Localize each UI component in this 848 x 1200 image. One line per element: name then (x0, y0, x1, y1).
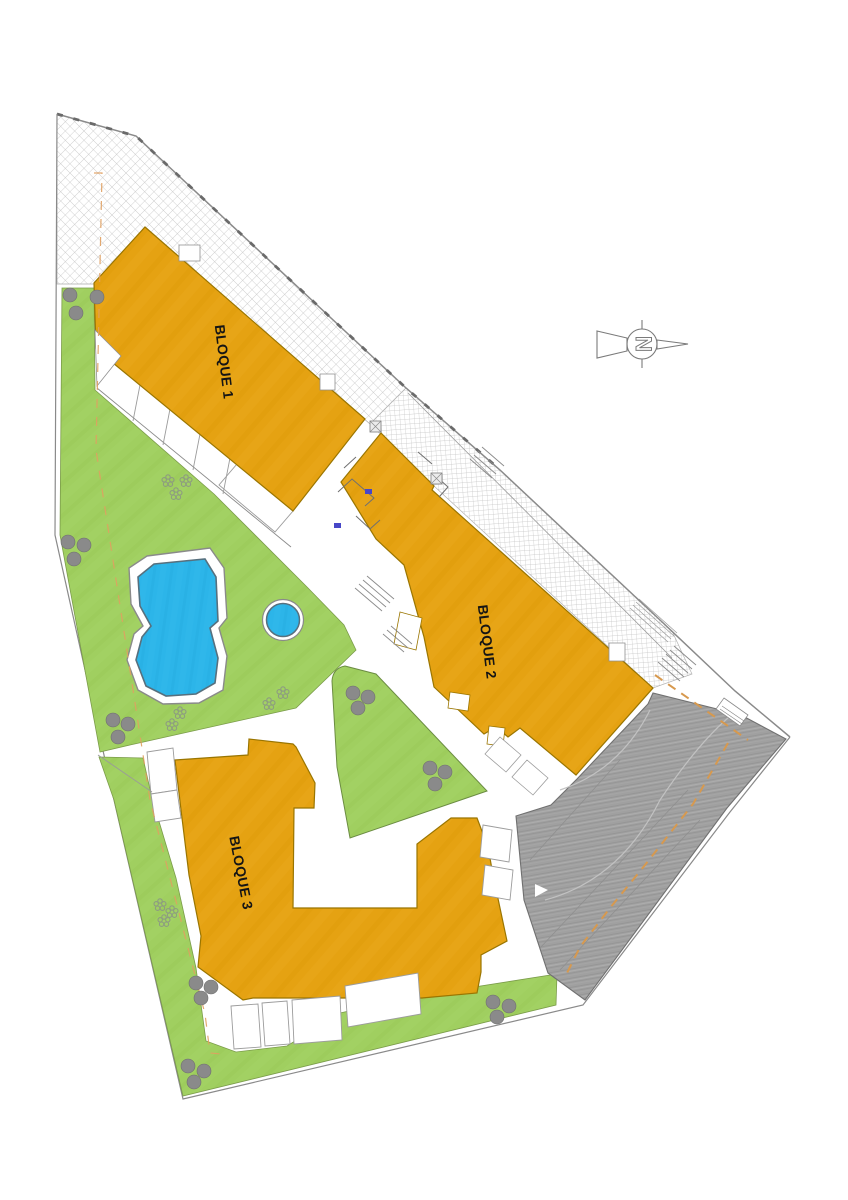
svg-text:N: N (631, 336, 656, 352)
